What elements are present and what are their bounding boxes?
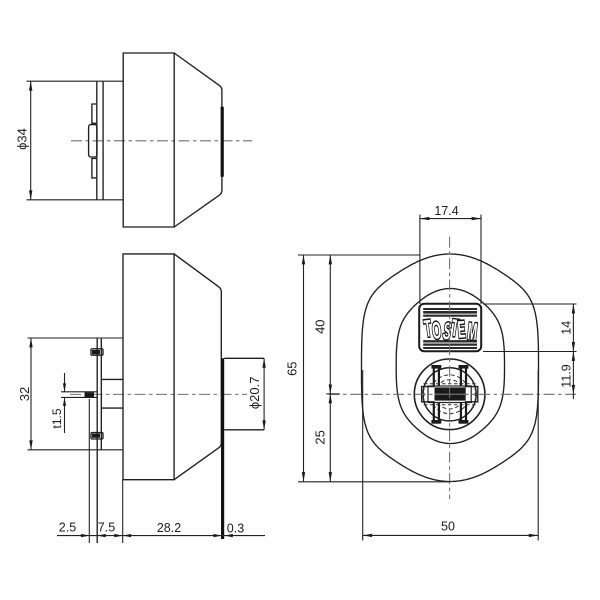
- svg-text:t1.5: t1.5: [50, 408, 64, 428]
- svg-text:14: 14: [560, 321, 574, 335]
- svg-text:28.2: 28.2: [157, 521, 181, 535]
- svg-text:7.5: 7.5: [98, 521, 115, 535]
- svg-text:40: 40: [312, 319, 327, 333]
- svg-text:0.3: 0.3: [227, 522, 244, 536]
- svg-text:ϕ34: ϕ34: [15, 128, 30, 150]
- svg-text:11.9: 11.9: [560, 364, 574, 387]
- svg-text:32: 32: [17, 387, 32, 401]
- svg-text:ϕ20.7: ϕ20.7: [247, 377, 262, 410]
- svg-text:50: 50: [441, 520, 455, 534]
- svg-text:25: 25: [312, 430, 327, 444]
- svg-text:65: 65: [285, 361, 300, 375]
- svg-text:2.5: 2.5: [59, 521, 76, 535]
- svg-text:17.4: 17.4: [434, 204, 458, 218]
